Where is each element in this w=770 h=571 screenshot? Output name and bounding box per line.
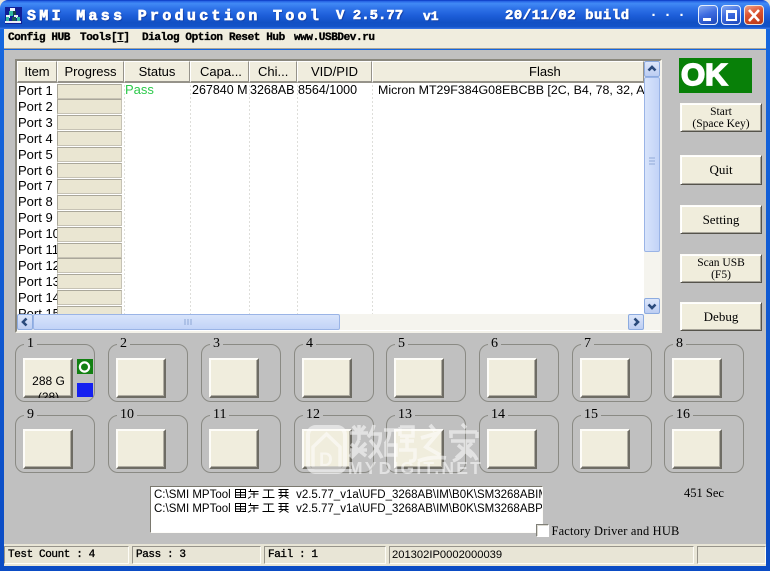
svg-text:D: D [319,450,333,471]
svg-text:MYDIGIT.NET: MYDIGIT.NET [348,458,483,478]
